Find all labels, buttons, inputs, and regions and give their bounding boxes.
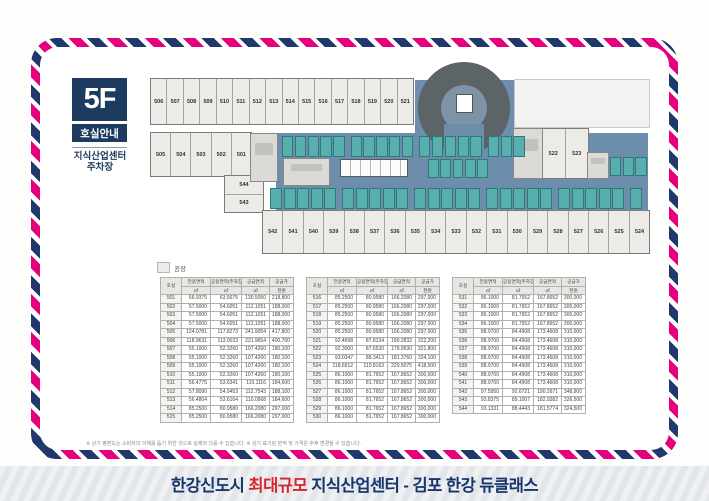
table-cell: 173.4608 (534, 363, 562, 372)
table-cell: 81.7652 (357, 380, 388, 389)
unit-row-left: 505504503502501 (150, 132, 252, 177)
table-row: 51685.250080.9580166.2080297,000 (307, 295, 440, 304)
table-row: 54297.595092.6721190.2671348,900 (453, 388, 586, 397)
parking-stall (599, 188, 611, 209)
table-cell: 179.9530 (388, 346, 416, 355)
table-cell: 321,800 (416, 346, 440, 355)
table-cell: 81.7652 (357, 371, 388, 380)
table-row: 53086.100081.7652167.8652300,000 (307, 414, 440, 423)
unit-cell: 515 (299, 79, 315, 124)
table-cell: 503 (161, 312, 182, 321)
col-header-supply: 공급면적 (388, 278, 416, 287)
table-cell: 86.1000 (328, 388, 357, 397)
table-cell: 521 (307, 337, 328, 346)
table-cell: 297,000 (416, 320, 440, 329)
table-row: 53688.970084.4908173.4608310,000 (453, 337, 586, 346)
unit-cell: 536 (385, 211, 405, 253)
table-cell: 63.5675 (211, 295, 242, 304)
table-cell: 324,100 (416, 354, 440, 363)
table-cell: 57.5000 (182, 320, 211, 329)
table-cell: 167.8652 (388, 388, 416, 397)
table-cell: 84.4908 (503, 380, 534, 389)
table-cell: 515 (161, 414, 182, 423)
table-cell: 167.8652 (534, 303, 562, 312)
table-cell: 86.1000 (328, 380, 357, 389)
table-cell: 112.1051 (242, 312, 270, 321)
floor-badge-subtitle: 호실안내 (72, 124, 127, 142)
unit-cell: 527 (569, 211, 589, 253)
table-cell: 81.7652 (357, 388, 388, 397)
table-row: 52886.100081.7652167.8652300,000 (307, 397, 440, 406)
table-cell: 88.3413 (357, 354, 388, 363)
unit-cell: 538 (345, 211, 365, 253)
building-type-line2: 주차장 (60, 162, 140, 173)
table-cell: 85.2500 (328, 303, 357, 312)
table-cell: 93.8375 (474, 397, 503, 406)
unit-cell: 510 (217, 79, 233, 124)
table-cell: 110.8163 (357, 363, 388, 372)
table-row: 51156.477553.6341110.1116184,600 (161, 380, 294, 389)
table-row: 53788.970084.4908173.4608310,000 (453, 346, 586, 355)
table-cell: 84.4908 (503, 329, 534, 338)
table-cell: 166.2080 (388, 295, 416, 304)
table-cell: 173.4608 (534, 380, 562, 389)
table-cell: 85.2500 (182, 405, 211, 414)
table-cell: 537 (453, 346, 474, 355)
table-row: 52292.300087.6530179.9530321,800 (307, 346, 440, 355)
table-cell: 86.1000 (474, 320, 503, 329)
table-cell: 300,000 (416, 405, 440, 414)
tagline-middle: 지식산업센터 - (307, 477, 412, 495)
table-cell: 297,000 (416, 312, 440, 321)
table-cell: 297,000 (270, 405, 294, 414)
table-cell: 539 (453, 363, 474, 372)
table-cell: 322,200 (416, 337, 440, 346)
table-row: 52686.100081.7652167.8652300,000 (307, 380, 440, 389)
table-cell: 97.5950 (474, 388, 503, 397)
table-row: 54188.970084.4908173.4608310,000 (453, 380, 586, 389)
table-cell: 118.6912 (328, 363, 357, 372)
unit-cell: 541 (283, 211, 303, 253)
table-cell: 107.4260 (242, 354, 270, 363)
legend-label: 공장 (174, 263, 186, 273)
table-cell: 326,500 (562, 397, 586, 406)
table-cell: 517 (307, 303, 328, 312)
table-cell: 167.8652 (388, 414, 416, 423)
table-cell: 241.9054 (242, 329, 270, 338)
table-row: 53486.100081.7652167.8652300,000 (453, 320, 586, 329)
unit-sqm: ㎡ (357, 287, 388, 295)
table-cell: 88.9700 (474, 346, 503, 355)
table-cell: 300,000 (416, 397, 440, 406)
table-row: 51885.250080.9580166.2080297,000 (307, 312, 440, 321)
unit-currency: 천원 (562, 287, 586, 295)
parking-stall (342, 188, 354, 209)
stall-group-middle (428, 159, 494, 178)
tagline-bar: 한강신도시 최대규모 지식산업센터 - 김포 한강 듀클래스 (0, 466, 709, 501)
unit-table-2: 호실 전용면적 공용면적(주차장포함) 공급면적 공급가 ㎡ ㎡ ㎡ 천원 51… (306, 277, 440, 423)
table-row: 52192.469887.8134180.2832322,200 (307, 337, 440, 346)
unit-cell: 525 (609, 211, 629, 253)
table-cell: 310,000 (562, 329, 586, 338)
unit-sqm: ㎡ (534, 287, 562, 295)
table-cell: 502 (161, 303, 182, 312)
table-cell: 166.2080 (388, 312, 416, 321)
table-cell: 400,700 (270, 337, 294, 346)
table-cell: 66.9375 (182, 295, 211, 304)
col-header-exclusive: 전용면적 (474, 278, 503, 287)
unit-cell: 531 (487, 211, 507, 253)
table-cell: 535 (453, 329, 474, 338)
table-cell: 300,000 (562, 312, 586, 321)
table-cell: 88.9700 (474, 380, 503, 389)
table-cell: 81.7652 (357, 405, 388, 414)
unit-cell: 516 (315, 79, 331, 124)
parking-stall (488, 136, 499, 157)
unit-cell: 509 (200, 79, 216, 124)
table-cell: 506 (161, 337, 182, 346)
table-cell: 52.3260 (211, 371, 242, 380)
parking-stall (270, 188, 282, 209)
table-cell: 86.1000 (474, 312, 503, 321)
parking-stall (572, 188, 584, 209)
table-cell: 89.1007 (503, 397, 534, 406)
table-cell: 88.4443 (503, 405, 534, 414)
table-cell: 92.6721 (503, 388, 534, 397)
parking-stall (470, 136, 481, 157)
table-cell: 85.2500 (328, 312, 357, 321)
parking-stall (513, 188, 525, 209)
table-cell: 107.4260 (242, 346, 270, 355)
table-cell: 88.9700 (474, 337, 503, 346)
parking-stall (324, 188, 336, 209)
table-cell: 310,000 (562, 354, 586, 363)
parking-stall (468, 188, 480, 209)
parking-stall (363, 136, 374, 157)
unit-cell: 502 (212, 133, 232, 176)
parking-stall (402, 136, 413, 157)
table-cell: 80.9580 (357, 329, 388, 338)
table-cell: 524 (307, 363, 328, 372)
table-cell: 523 (307, 354, 328, 363)
table-cell: 173.4608 (534, 346, 562, 355)
stall-row-bottom (270, 188, 646, 209)
parking-stall (630, 188, 642, 209)
table-cell: 507 (161, 346, 182, 355)
table-cell: 310,000 (562, 363, 586, 372)
unit-cell: 540 (304, 211, 324, 253)
table-cell: 53.6341 (211, 380, 242, 389)
table-cell: 54.9453 (211, 388, 242, 397)
unit-cell: 535 (406, 211, 426, 253)
table-cell: 514 (161, 405, 182, 414)
parking-stall (295, 136, 306, 157)
building-type-caption: 지식산업센터 주차장 (60, 151, 140, 173)
table-cell: 529 (307, 405, 328, 414)
table-row: 506118.9631113.0023231.9654400,700 (161, 337, 294, 346)
table-cell: 310,000 (562, 380, 586, 389)
table-cell: 85.2500 (328, 329, 357, 338)
table-cell: 300,000 (416, 380, 440, 389)
tagline-brand: 김포 한강 듀클래스 (412, 477, 538, 495)
parking-stall (635, 157, 646, 176)
table-cell: 92.3000 (328, 346, 357, 355)
col-header-common: 공용면적(주차장포함) (211, 278, 242, 287)
table-cell: 86.1000 (328, 405, 357, 414)
table-cell: 130.5050 (242, 295, 270, 304)
table-cell: 53.6164 (211, 397, 242, 406)
table-cell: 84.4908 (503, 354, 534, 363)
table-cell: 300,000 (562, 295, 586, 304)
table-cell: 520 (307, 329, 328, 338)
parking-stall (465, 159, 476, 178)
table-cell: 85.2500 (182, 414, 211, 423)
table-cell: 55.1000 (182, 354, 211, 363)
table-cell: 56.4775 (182, 380, 211, 389)
unit-cell: 503 (191, 133, 211, 176)
table-cell: 86.1000 (328, 414, 357, 423)
table-row: 50166.937563.5675130.5050218,800 (161, 295, 294, 304)
table-cell: 180,100 (270, 354, 294, 363)
unit-cell: 519 (365, 79, 381, 124)
table-cell: 530 (307, 414, 328, 423)
unit-cell: 508 (184, 79, 200, 124)
table-cell: 297,000 (416, 329, 440, 338)
table-cell: 92.4698 (328, 337, 357, 346)
unit-cell: 501 (232, 133, 251, 176)
table-cell: 167.8652 (388, 371, 416, 380)
ramp-booth (456, 94, 473, 113)
table-cell: 118.9631 (182, 337, 211, 346)
table-row: 53186.100081.7652167.8652300,000 (453, 295, 586, 304)
unit-currency: 천원 (416, 287, 440, 295)
table-row: 52786.100081.7652167.8652300,000 (307, 388, 440, 397)
table-cell: 107.4260 (242, 363, 270, 372)
table-cell: 527 (307, 388, 328, 397)
table-cell: 190.2671 (534, 388, 562, 397)
table-cell: 167.8652 (388, 405, 416, 414)
parking-stall (612, 188, 624, 209)
col-header-price: 공급가 (416, 278, 440, 287)
col-header-supply: 공급면적 (534, 278, 562, 287)
table-cell: 57.5000 (182, 312, 211, 321)
table-cell: 528 (307, 397, 328, 406)
table-cell: 540 (453, 371, 474, 380)
table-cell: 218,800 (270, 295, 294, 304)
col-header-exclusive: 전용면적 (182, 278, 211, 287)
table-row: 50457.500054.6051112.1051188,000 (161, 320, 294, 329)
table-cell: 55.1000 (182, 371, 211, 380)
table-cell: 300,000 (562, 320, 586, 329)
table-cell: 84.4908 (503, 346, 534, 355)
unit-sqm: ㎡ (474, 287, 503, 295)
parking-stall (311, 188, 323, 209)
table-cell: 513 (161, 397, 182, 406)
table-cell: 57.8090 (182, 388, 211, 397)
parking-stall (297, 188, 309, 209)
table-row: 50357.500054.6051112.1051188,000 (161, 312, 294, 321)
table-row: 51985.250080.9580166.2080297,000 (307, 320, 440, 329)
table-row: 524118.6912110.8163229.5075418,500 (307, 363, 440, 372)
parking-stall (414, 188, 426, 209)
unit-row-top: 5065075085095105115125135145155165175185… (150, 78, 414, 125)
table-cell: 533 (453, 312, 474, 321)
col-header-exclusive: 전용면적 (328, 278, 357, 287)
table-cell: 188,000 (270, 303, 294, 312)
table-cell: 297,000 (416, 303, 440, 312)
unit-cell: 518 (348, 79, 364, 124)
table-cell: 504 (161, 320, 182, 329)
table-cell: 167.8652 (388, 380, 416, 389)
table-cell: 55.1000 (182, 346, 211, 355)
table-cell: 534 (453, 320, 474, 329)
table-cell: 188,000 (270, 320, 294, 329)
unit-cell: 532 (467, 211, 487, 253)
table-cell: 310,000 (562, 371, 586, 380)
unit-sqm: ㎡ (211, 287, 242, 295)
table-row: 51356.480453.6164110.0968184,600 (161, 397, 294, 406)
table-cell: 80.9580 (211, 414, 242, 423)
brochure-page: 5F 호실안내 지식산업센터 주차장 506507508509510511512… (0, 0, 709, 501)
table-cell: 181.5774 (534, 405, 562, 414)
table-cell: 173.4608 (534, 354, 562, 363)
parking-stall (333, 136, 344, 157)
parking-stall (282, 136, 293, 157)
stall-group-right (610, 157, 648, 176)
parking-stall (610, 157, 621, 176)
table-cell: 93.0347 (328, 354, 357, 363)
table-cell: 297,000 (416, 295, 440, 304)
table-cell: 166.2080 (388, 303, 416, 312)
parking-stall (284, 188, 296, 209)
table-body-2: 51685.250080.9580166.2080297,00051785.25… (307, 295, 440, 423)
parking-stall (623, 157, 634, 176)
table-cell: 88.9700 (474, 354, 503, 363)
parking-stall (383, 188, 395, 209)
table-cell: 117.8273 (211, 329, 242, 338)
table-cell: 88.9700 (474, 329, 503, 338)
table-cell: 166.2080 (242, 405, 270, 414)
table-cell: 544 (453, 405, 474, 414)
table-cell: 173.4608 (534, 371, 562, 380)
table-cell: 538 (453, 354, 474, 363)
parking-stall (440, 159, 451, 178)
parking-stall (432, 136, 443, 157)
table-cell: 167.8652 (534, 320, 562, 329)
table-cell: 52.3260 (211, 346, 242, 355)
parking-stall (376, 136, 387, 157)
table-cell: 88.9700 (474, 371, 503, 380)
table-cell: 84.4908 (503, 363, 534, 372)
table-cell: 505 (161, 329, 182, 338)
unit-cell: 526 (589, 211, 609, 253)
floor-badge: 5F (72, 78, 127, 121)
unit-cell: 528 (548, 211, 568, 253)
table-cell: 54.6051 (211, 312, 242, 321)
unit-sqm: ㎡ (503, 287, 534, 295)
table-row: 51485.250080.9580166.2080297,000 (161, 405, 294, 414)
service-core-left (283, 158, 330, 186)
parking-stall (455, 188, 467, 209)
table-cell: 112.1051 (242, 320, 270, 329)
table-cell: 112.7543 (242, 388, 270, 397)
unit-cell: 543 (225, 195, 263, 213)
table-cell: 166.2080 (242, 414, 270, 423)
table-cell: 542 (453, 388, 474, 397)
table-cell: 531 (453, 295, 474, 304)
table-cell: 81.7652 (357, 414, 388, 423)
table-cell: 188,100 (270, 388, 294, 397)
legend: 공장 (157, 262, 186, 273)
table-cell: 180,100 (270, 363, 294, 372)
unit-cell: 533 (446, 211, 466, 253)
table-row: 50755.100052.3260107.4260180,100 (161, 346, 294, 355)
table-cell: 57.5000 (182, 303, 211, 312)
table-cell: 526 (307, 380, 328, 389)
parking-stall (320, 136, 331, 157)
parking-stall (351, 136, 362, 157)
table-cell: 509 (161, 363, 182, 372)
table-cell: 86.1000 (328, 397, 357, 406)
unit-cell: 530 (508, 211, 528, 253)
table-cell: 173.4608 (534, 329, 562, 338)
parking-stall (428, 159, 439, 178)
footnote: ※ 상기 평면도는 소비자의 이해를 돕기 위한 것으로 실제와 다를 수 있습… (86, 440, 361, 447)
unit-cell: 523 (566, 129, 589, 178)
table-cell: 93.1331 (474, 405, 503, 414)
table-cell: 536 (453, 337, 474, 346)
table-cell: 173.4608 (534, 337, 562, 346)
table-cell: 81.7652 (357, 397, 388, 406)
unit-cell: 512 (250, 79, 266, 124)
parking-stall (356, 188, 368, 209)
table-cell: 310,000 (562, 346, 586, 355)
table-cell: 81.7652 (503, 295, 534, 304)
table-cell: 124.0781 (182, 329, 211, 338)
col-header-supply: 공급면적 (242, 278, 270, 287)
table-cell: 85.2500 (328, 295, 357, 304)
table-row: 50855.100052.3260107.4260180,100 (161, 354, 294, 363)
table-cell: 348,900 (562, 388, 586, 397)
table-cell: 184,600 (270, 397, 294, 406)
unit-row-right: 522523 (541, 128, 589, 179)
table-row: 51257.809054.9453112.7543188,100 (161, 388, 294, 397)
table-cell: 87.6530 (357, 346, 388, 355)
service-room-right (587, 152, 609, 179)
parking-stall (540, 188, 552, 209)
table-cell: 518 (307, 312, 328, 321)
parking-stall (501, 136, 512, 157)
table-cell: 511 (161, 380, 182, 389)
col-header-common: 공용면적(주차장포함) (357, 278, 388, 287)
table-body-1: 50166.937563.5675130.5050218,80050257.50… (161, 295, 294, 423)
table-cell: 80.9580 (211, 405, 242, 414)
unit-cell: 513 (266, 79, 282, 124)
table-cell: 516 (307, 295, 328, 304)
table-cell: 180,100 (270, 346, 294, 355)
table-cell: 501 (161, 295, 182, 304)
table-cell: 510 (161, 371, 182, 380)
table-cell: 324,500 (562, 405, 586, 414)
parking-stall (486, 188, 498, 209)
table-cell: 112.1051 (242, 303, 270, 312)
unit-cell: 542 (263, 211, 283, 253)
table-cell: 184,600 (270, 380, 294, 389)
table-cell: 512 (161, 388, 182, 397)
table-cell: 541 (453, 380, 474, 389)
table-cell: 55.1000 (182, 363, 211, 372)
col-header-price: 공급가 (562, 278, 586, 287)
